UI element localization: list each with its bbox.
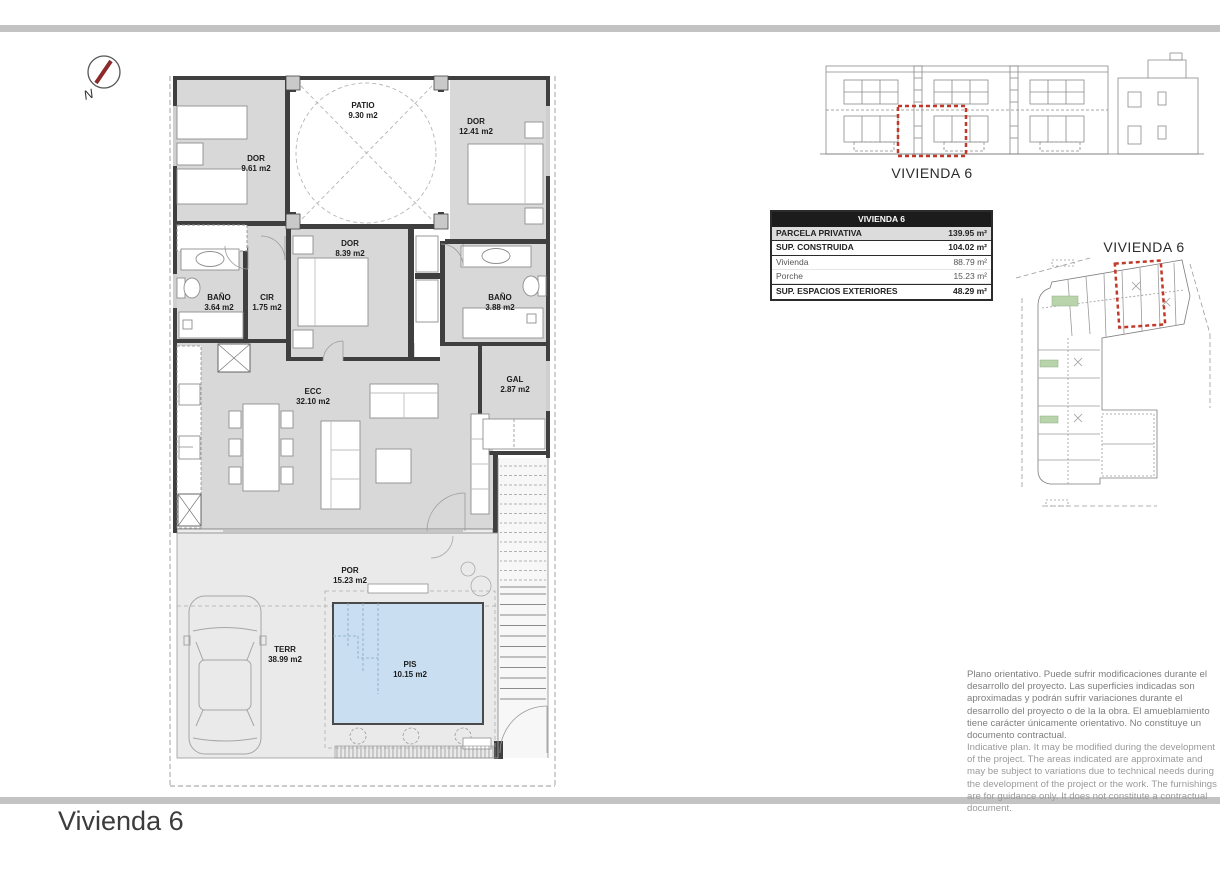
disclaimer-english: Indicative plan. It may be modified duri… [967,742,1219,815]
row-label: SUP. CONSTRUIDA [776,243,854,252]
elevation-drawing: VIVIENDA 6 [818,48,1206,188]
room-dor1-name: DOR [247,154,265,163]
elevation-highlight-box [898,106,966,156]
room-dor3-name: DOR [341,239,359,248]
row-label: SUP. ESPACIOS EXTERIORES [776,287,898,296]
room-cir-area: 1.75 m2 [252,303,282,312]
entry-paving [335,746,495,758]
room-por-name: POR [341,566,359,575]
area-summary-table: VIVIENDA 6 PARCELA PRIVATIVA 139.95 m² S… [770,210,993,301]
room-gal-area: 2.87 m2 [500,385,530,394]
bedroom1-furniture [177,106,247,251]
room-cir-name: CIR [260,293,274,302]
north-label: N [82,86,96,103]
table-row: SUP. CONSTRUIDA 104.02 m² [772,241,991,255]
room-dor2-area: 12.41 m2 [459,127,493,136]
dining-set [229,404,293,491]
site-plan: VIVIENDA 6 [1012,238,1220,530]
sheet-title: Vivienda 6 [58,806,184,837]
elevation-caption: VIVIENDA 6 [891,165,972,181]
room-gal-name: GAL [507,375,524,384]
living-room-glazing [177,529,493,533]
room-bano2-name: BAÑO [488,293,512,302]
room-ecc-area: 32.10 m2 [296,397,330,406]
hall-wardrobes [415,236,440,322]
room-patio-area: 9.30 m2 [348,111,378,120]
row-value: 139.95 m² [948,229,987,238]
floor-plan: DOR 9.61 m2 PATIO 9.30 m2 DOR 12.41 m2 D… [163,46,563,792]
room-bano1-name: BAÑO [207,293,231,302]
row-value: 15.23 m² [953,272,987,281]
room-pis-area: 10.15 m2 [393,670,427,679]
row-label: Porche [776,272,803,281]
plan-sheet: { "north": { "label": "N" }, "floor_plan… [0,0,1220,870]
disclaimer-spanish: Plano orientativo. Puede sufrir modifica… [967,669,1219,742]
table-row: Porche 15.23 m² [772,270,991,284]
title-block-top-rule [0,25,1220,32]
room-bano2-area: 3.88 m2 [485,303,515,312]
site-green-areas [1040,296,1078,423]
row-value: 48.29 m² [953,287,987,296]
row-label: Vivienda [776,258,808,267]
room-dor1-area: 9.61 m2 [241,164,271,173]
room-patio-name: PATIO [351,101,374,110]
table-row: SUP. ESPACIOS EXTERIORES 48.29 m² [772,284,991,298]
room-bano1-area: 3.64 m2 [204,303,234,312]
row-value: 104.02 m² [948,243,987,252]
table-header: VIVIENDA 6 [772,212,991,227]
table-row: PARCELA PRIVATIVA 139.95 m² [772,227,991,241]
room-ecc-name: ECC [305,387,322,396]
laundry-units [483,419,545,449]
room-pis-name: PIS [404,660,418,669]
room-por-area: 15.23 m2 [333,576,367,585]
row-value: 88.79 m² [953,258,987,267]
disclaimer: Plano orientativo. Puede sufrir modifica… [967,669,1219,815]
row-label: PARCELA PRIVATIVA [776,229,862,238]
site-plan-caption: VIVIENDA 6 [1103,239,1184,255]
room-dor2-name: DOR [467,117,485,126]
room-terr-name: TERR [274,645,296,654]
north-arrow-icon: N [76,46,136,108]
room-terr-area: 38.99 m2 [268,655,302,664]
room-dor3-area: 8.39 m2 [335,249,365,258]
table-row: Vivienda 88.79 m² [772,256,991,270]
